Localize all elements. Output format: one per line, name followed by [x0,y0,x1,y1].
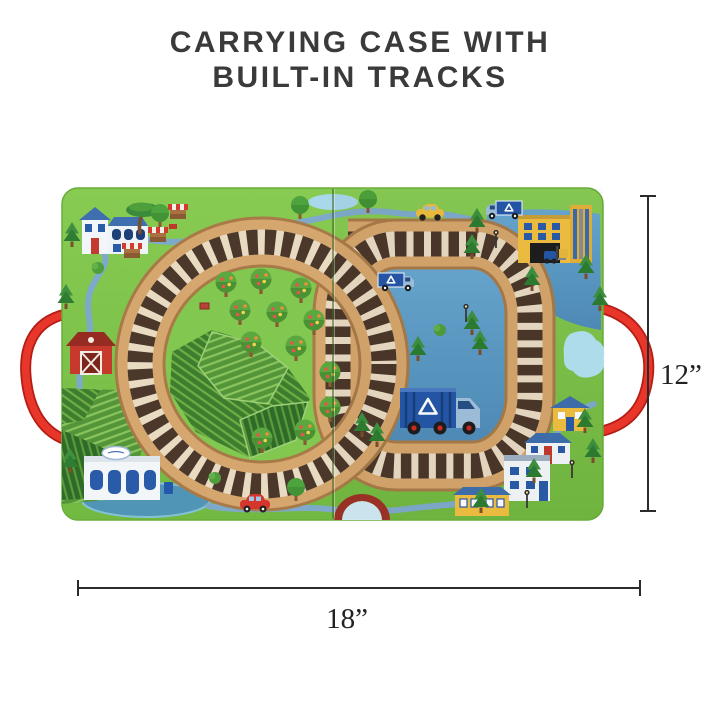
product-scene: 12” 18” [0,0,720,720]
width-label: 18” [326,603,368,635]
fold-line [332,189,603,519]
carry-handle-left [26,314,66,440]
play-board [58,188,609,520]
crate [200,303,209,309]
width-dimension [78,580,640,596]
carry-handle-right [598,308,649,432]
product-image: CARRYING CASE WITH BUILT-IN TRACKS [0,0,720,720]
red-barn [66,332,116,374]
height-label: 12” [660,359,702,391]
